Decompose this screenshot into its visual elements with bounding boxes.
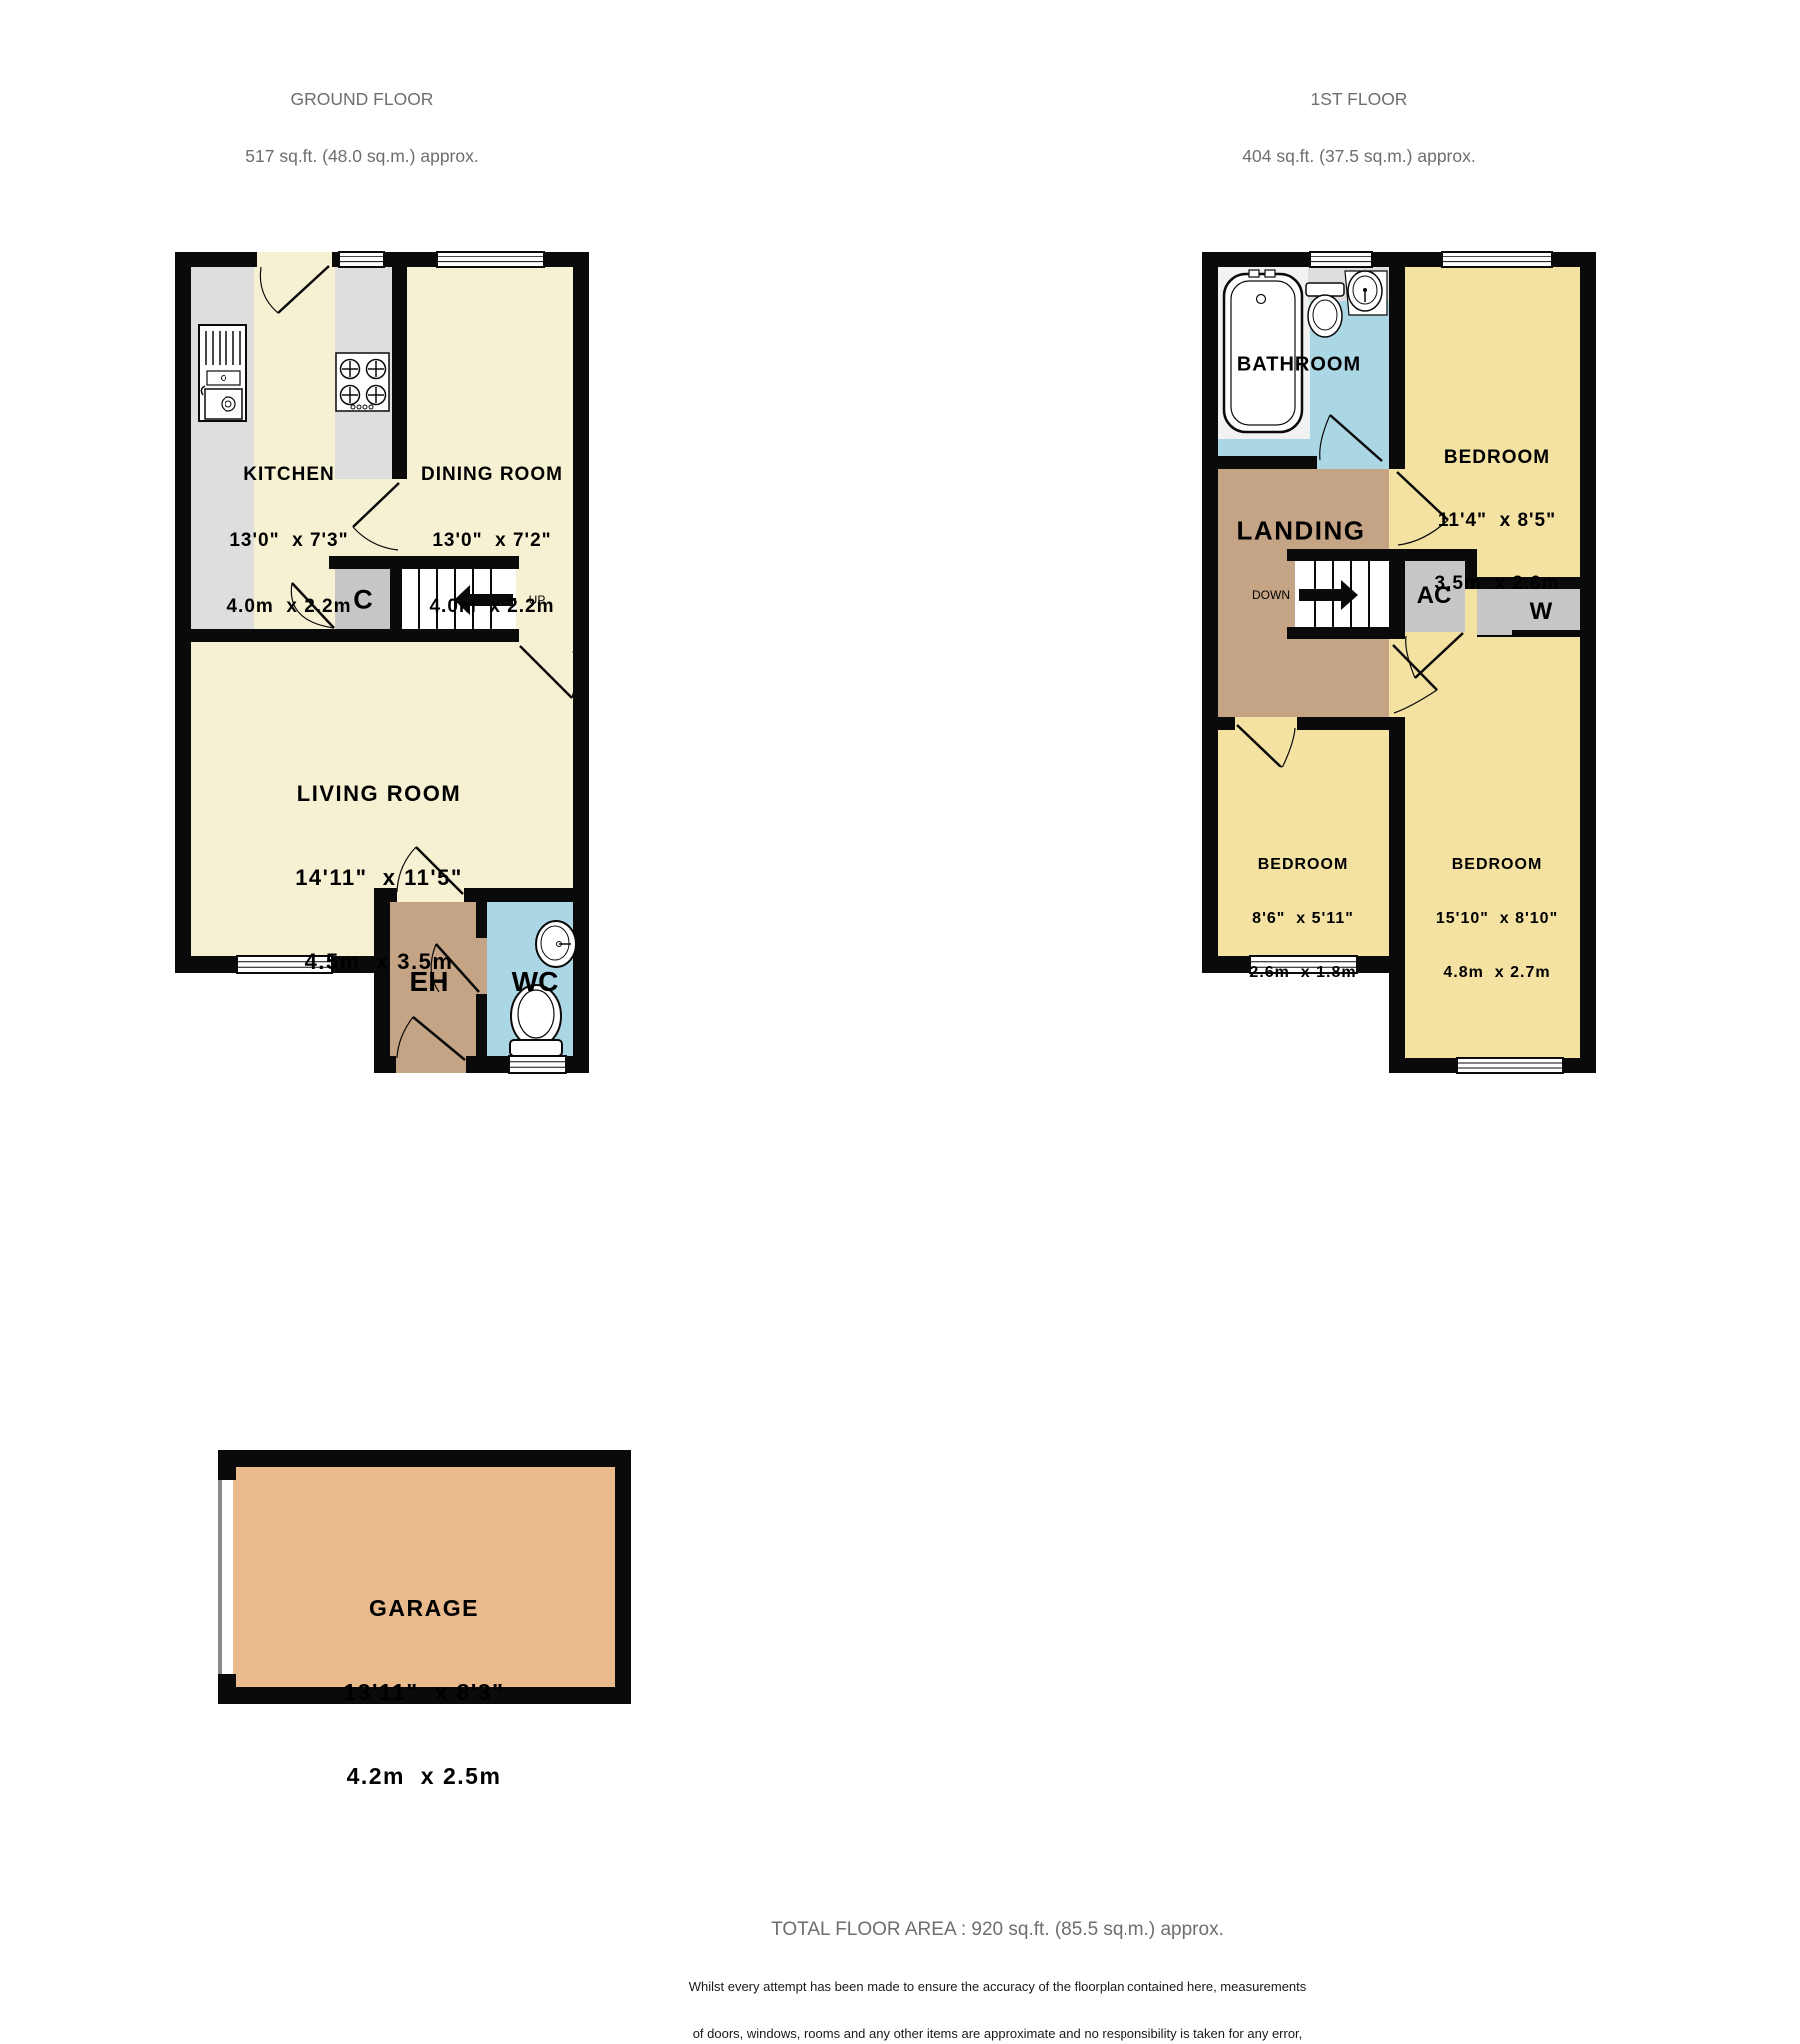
window: [339, 252, 384, 267]
room-name: DINING ROOM: [421, 464, 563, 486]
room-size-metric: 3.5m x 2.6m: [1434, 573, 1559, 594]
room-name: GARAGE: [343, 1594, 504, 1622]
bedroom-1-label: BEDROOM 11'4" x 8'5" 3.5m x 2.6m: [1434, 405, 1559, 615]
first-floor-header: 1ST FLOOR 404 sq.ft. (37.5 sq.m.) approx…: [1242, 52, 1475, 185]
kitchen-hob-icon: [336, 353, 389, 411]
living-room-label: LIVING ROOM 14'11" x 11'5" 4.5m x 3.5m: [295, 725, 463, 1004]
room-size-metric: 4.0m x 2.2m: [226, 596, 351, 618]
landing-label: LANDING: [1237, 516, 1366, 547]
bathroom-label: BATHROOM: [1237, 354, 1361, 377]
window: [509, 1056, 566, 1073]
room-size-imperial: 15'10" x 8'10": [1436, 910, 1558, 928]
floorplan-page: GROUND FLOOR 517 sq.ft. (48.0 sq.m.) app…: [0, 0, 1800, 2044]
room-size-metric: 4.8m x 2.7m: [1436, 964, 1558, 982]
room-size-imperial: 14'11" x 11'5": [295, 864, 463, 892]
room-name: BEDROOM: [1436, 856, 1558, 874]
wardrobe-label: W: [1530, 598, 1553, 626]
room-size-metric: 2.6m x 1.8m: [1249, 964, 1356, 982]
total-floor-area: TOTAL FLOOR AREA : 920 sq.ft. (85.5 sq.m…: [771, 1919, 1224, 1941]
disclaimer-line: of doors, windows, rooms and any other i…: [685, 2026, 1310, 2042]
cupboard-label: C: [353, 585, 373, 616]
ground-floor-header: GROUND FLOOR 517 sq.ft. (48.0 sq.m.) app…: [245, 52, 478, 185]
disclaimer: Whilst every attempt has been made to en…: [685, 1948, 1310, 2044]
disclaimer-line: Whilst every attempt has been made to en…: [685, 1979, 1310, 1995]
wc-label: WC: [512, 966, 559, 998]
room-name: BEDROOM: [1249, 856, 1356, 874]
bathroom-basin-icon: [1345, 271, 1387, 315]
entrance-hall-label: EH: [410, 966, 449, 998]
floorplan-graphics: [0, 0, 1800, 2044]
window: [437, 252, 544, 267]
bathroom-toilet-icon: [1306, 283, 1344, 337]
room-name: LIVING ROOM: [295, 780, 463, 808]
window: [1310, 252, 1372, 267]
kitchen-sink-icon: [199, 325, 246, 421]
bedroom-2-label: BEDROOM 15'10" x 8'10" 4.8m x 2.7m: [1436, 820, 1558, 1000]
garage-label: GARAGE 13'11" x 8'3" 4.2m x 2.5m: [343, 1538, 504, 1817]
room-size-metric: 4.2m x 2.5m: [343, 1762, 504, 1789]
first-floor-title: 1ST FLOOR: [1242, 90, 1475, 109]
garage-door-line: [218, 1480, 222, 1674]
window: [1457, 1058, 1563, 1073]
ground-floor-title: GROUND FLOOR: [245, 90, 478, 109]
stairs-down-label: DOWN: [1252, 588, 1290, 602]
wc-basin-icon: [536, 921, 576, 967]
dining-room-label: DINING ROOM 13'0" x 7'2" 4.0m x 2.2m: [421, 420, 563, 640]
first-floor-area: 404 sq.ft. (37.5 sq.m.) approx.: [1242, 147, 1475, 166]
room-size-imperial: 8'6" x 5'11": [1249, 910, 1356, 928]
stairs-up-label: UP: [529, 593, 546, 607]
bathtub-icon: [1224, 270, 1302, 432]
airing-cupboard-label: AC: [1417, 582, 1452, 610]
room-name: KITCHEN: [226, 464, 351, 486]
ground-floor-area: 517 sq.ft. (48.0 sq.m.) approx.: [245, 147, 478, 166]
window: [1442, 252, 1552, 267]
room-size-imperial: 13'0" x 7'2": [421, 530, 563, 552]
room-size-imperial: 11'4" x 8'5": [1434, 510, 1559, 531]
room-name: BEDROOM: [1434, 447, 1559, 468]
room-size-imperial: 13'0" x 7'3": [226, 530, 351, 552]
room-size-imperial: 13'11" x 8'3": [343, 1678, 504, 1706]
stairs-down: [1295, 561, 1389, 627]
kitchen-label: KITCHEN 13'0" x 7'3" 4.0m x 2.2m: [226, 420, 351, 640]
bedroom-3-label: BEDROOM 8'6" x 5'11" 2.6m x 1.8m: [1249, 820, 1356, 1000]
